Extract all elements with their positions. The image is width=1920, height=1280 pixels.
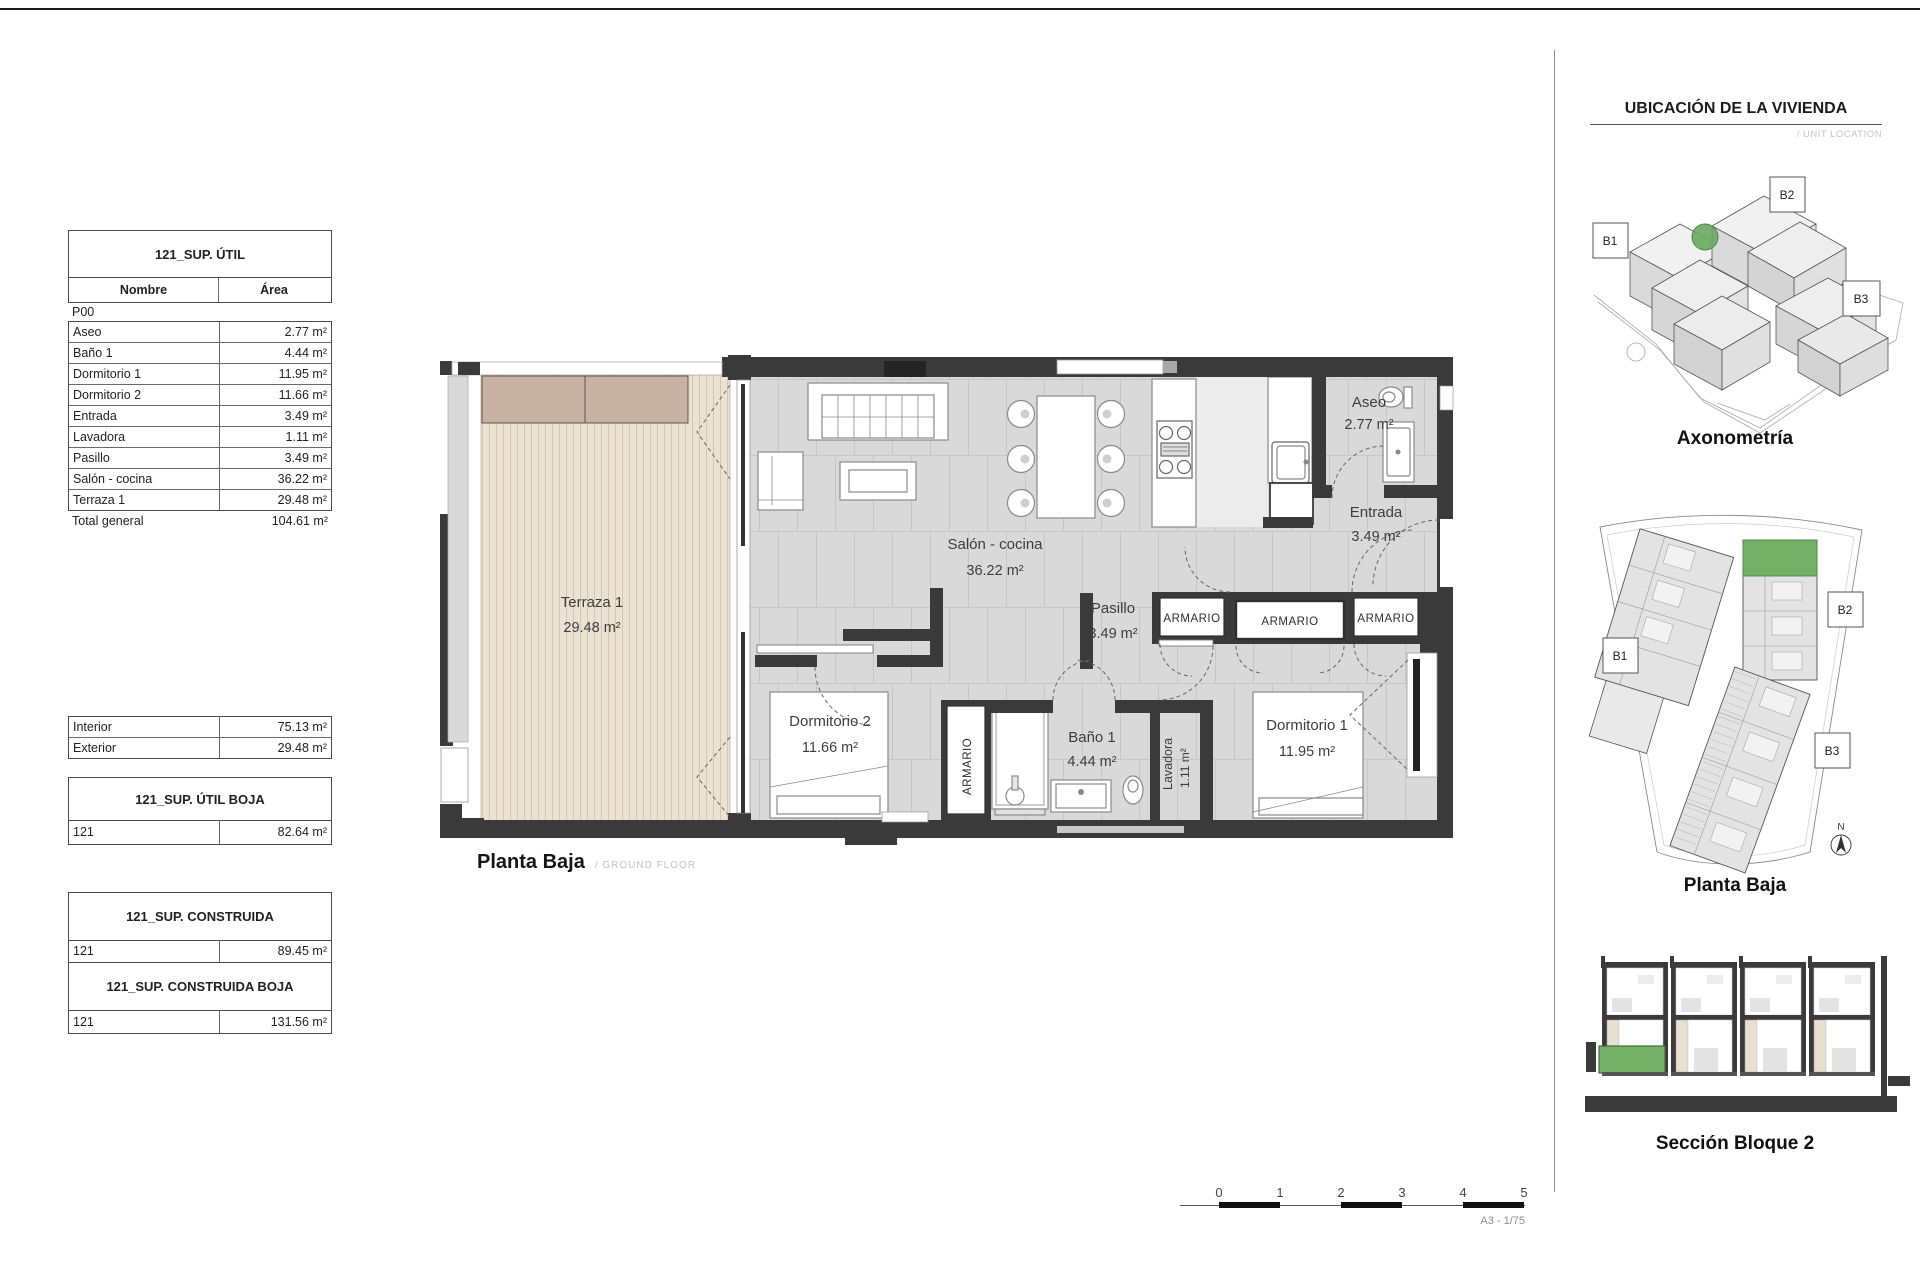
room-label-entrada: Entrada [1350, 504, 1403, 521]
row-name: Baño 1 [69, 343, 220, 363]
unit-highlight-section [1599, 1046, 1665, 1073]
scale-tick: 4 [1453, 1185, 1473, 1200]
table-row: Pasillo3.49 m² [69, 447, 331, 468]
room-label-bano: Baño 1 [1068, 729, 1116, 746]
sofa [808, 383, 948, 440]
table-title: 121_SUP. ÚTIL [68, 230, 332, 278]
table-title: 121_SUP. CONSTRUIDA [68, 892, 332, 941]
row-name: Entrada [69, 406, 220, 426]
section-caption: Sección Bloque 2 [1570, 1133, 1900, 1155]
section-diagram [1585, 950, 1915, 1130]
total-value: 104.61 m² [219, 511, 332, 531]
row-name: Dormitorio 1 [69, 364, 220, 384]
table-row: Entrada3.49 m² [69, 405, 331, 426]
kitchen-island [1152, 379, 1196, 527]
axon-caption: Axonometría [1570, 428, 1900, 450]
row-name: Exterior [69, 738, 220, 758]
scale-tick: 2 [1331, 1185, 1351, 1200]
north-arrow: N [1831, 822, 1851, 855]
sidebar-subtitle: / UNIT LOCATION [1590, 129, 1882, 140]
room-label-aseo: Aseo [1352, 394, 1386, 411]
scale-segment [1341, 1202, 1402, 1208]
row-name: Pasillo [69, 448, 220, 468]
table-util-boja: 121_SUP. ÚTIL BOJA 121 82.64 m² [68, 777, 332, 845]
room-area-lavadora: 1.11 m² [1178, 748, 1192, 788]
armchair [758, 452, 803, 510]
bano-toilet [1123, 776, 1143, 804]
bano-sink [1051, 780, 1111, 812]
shower [992, 707, 1048, 815]
plan-caption-title: Planta Baja [477, 851, 585, 873]
room-area-bano: 4.44 m² [1067, 754, 1116, 770]
total-label: Total general [68, 511, 219, 531]
closet-label: ARMARIO [1163, 613, 1220, 625]
section-modules [1599, 956, 1875, 1076]
room-label-pasillo: Pasillo [1091, 600, 1135, 617]
scale-bar: 0 1 2 3 4 5 A3 - 1/75 [1180, 1185, 1560, 1240]
table-row: Dormitorio 211.66 m² [69, 384, 331, 405]
group-label: P00 [68, 303, 221, 321]
row-name: Interior [69, 717, 220, 737]
sidebar-header: UBICACIÓN DE LA VIVIENDA / UNIT LOCATION [1590, 100, 1882, 140]
row-name: 121 [69, 941, 220, 962]
room-label-dormitorio1: Dormitorio 1 [1266, 717, 1348, 734]
scale-tick: 0 [1209, 1185, 1229, 1200]
window-bottom [882, 812, 928, 822]
scale-tick: 1 [1270, 1185, 1290, 1200]
ground-slab [1585, 1096, 1897, 1112]
room-area-pasillo: 3.49 m² [1088, 626, 1137, 642]
row-name: Dormitorio 2 [69, 385, 220, 405]
row-name: Lavadora [69, 427, 220, 447]
floor-plan: Terraza 1 29.48 m² Salón - cocina 36.22 … [440, 340, 1460, 860]
room-area-terraza: 29.48 m² [563, 620, 620, 636]
table-row: Terraza 129.48 m² [69, 489, 331, 510]
closet-label: ARMARIO [1261, 616, 1318, 628]
window-top [1057, 360, 1163, 374]
row-area: 4.44 m² [220, 343, 331, 363]
label-b3: B3 [1854, 292, 1869, 306]
room-area-dormitorio1: 11.95 m² [1279, 744, 1335, 760]
table-row: Baño 14.44 m² [69, 342, 331, 363]
sidebar-title: UBICACIÓN DE LA VIVIENDA [1590, 100, 1882, 125]
row-name: Terraza 1 [69, 490, 220, 510]
label-b1: B1 [1603, 234, 1618, 248]
panel-divider-line [1554, 50, 1555, 1192]
scale-segment [1463, 1202, 1524, 1208]
entry-door-opening [1440, 519, 1453, 587]
label-b2: B2 [1838, 603, 1853, 617]
plan-caption-sub: / GROUND FLOOR [595, 860, 696, 871]
north-label: N [1837, 822, 1844, 833]
row-area: 1.11 m² [220, 427, 331, 447]
table-construida: 121_SUP. CONSTRUIDA 121 89.45 m² 121_SUP… [68, 892, 332, 1034]
table-sup-util: 121_SUP. ÚTIL Nombre Área P00 Aseo2.77 m… [68, 230, 332, 531]
row-area: 89.45 m² [220, 941, 331, 962]
room-label-dormitorio2: Dormitorio 2 [789, 713, 871, 730]
column-header-area: Área [219, 278, 329, 302]
row-area: 75.13 m² [220, 717, 331, 737]
row-area: 82.64 m² [220, 821, 331, 844]
row-area: 29.48 m² [220, 738, 331, 758]
table-title: 121_SUP. CONSTRUIDA BOJA [68, 963, 332, 1011]
row-name: Aseo [69, 322, 220, 342]
room-area-entrada: 3.49 m² [1351, 529, 1400, 545]
table-body: Interior75.13 m² Exterior29.48 m² [68, 716, 332, 759]
row-area: 11.95 m² [220, 364, 331, 384]
row-area: 3.49 m² [220, 448, 331, 468]
room-area-dormitorio2: 11.66 m² [802, 740, 858, 756]
site-plan-diagram: B1 B2 B3 N [1585, 505, 1915, 875]
row-area: 36.22 m² [220, 469, 331, 489]
low-cabinet [757, 645, 873, 653]
shelf [1159, 640, 1213, 646]
table-row: Interior75.13 m² [69, 717, 331, 737]
table-row: Aseo2.77 m² [69, 322, 331, 342]
table-interior-exterior: Interior75.13 m² Exterior29.48 m² [68, 716, 332, 759]
plan-caption: Planta Baja/ GROUND FLOOR [477, 851, 696, 874]
row-area: 131.56 m² [220, 1011, 331, 1033]
section-end-wall [1881, 956, 1887, 1104]
site-b2-building [1743, 540, 1817, 680]
room-label-lavadora: Lavadora [1161, 738, 1175, 790]
label-b1: B1 [1613, 649, 1628, 663]
table-title: 121_SUP. ÚTIL BOJA [68, 777, 332, 821]
closet-label: ARMARIO [1357, 613, 1414, 625]
table-row: Salón - cocina36.22 m² [69, 468, 331, 489]
scale-tick: 3 [1392, 1185, 1412, 1200]
neighbor-terrace-strip [448, 376, 468, 742]
unit-highlight-axon [1692, 224, 1718, 250]
room-label-salon: Salón - cocina [947, 536, 1043, 553]
row-name: 121 [69, 1011, 220, 1033]
room-area-salon: 36.22 m² [966, 563, 1023, 579]
kitchen-floor [1196, 377, 1268, 527]
unit-highlight-site [1743, 540, 1817, 576]
row-area: 11.66 m² [220, 385, 331, 405]
table-body: Aseo2.77 m² Baño 14.44 m² Dormitorio 111… [68, 321, 332, 511]
column-header-nombre: Nombre [69, 278, 219, 302]
kitchen-counter [1268, 377, 1312, 483]
row-name: 121 [69, 821, 220, 844]
window-aseo [1440, 386, 1453, 410]
scale-segment [1219, 1202, 1280, 1208]
window-dormitorio1 [1407, 653, 1437, 777]
drawing-sheet: { "page": { "scale_ticks": ["0","1","2",… [0, 0, 1920, 1280]
room-area-aseo: 2.77 m² [1344, 417, 1393, 433]
closet-label-vertical: ARMARIO [962, 738, 974, 795]
row-name: Salón - cocina [69, 469, 220, 489]
room-label-terraza: Terraza 1 [561, 594, 624, 611]
coffee-table [840, 462, 916, 500]
site-caption: Planta Baja [1570, 875, 1900, 897]
window-sill-bottom [1057, 826, 1184, 833]
axonometry-diagram: B1 B2 B3 [1585, 150, 1915, 450]
table-row: Lavadora1.11 m² [69, 426, 331, 447]
table-row: Exterior29.48 m² [69, 737, 331, 758]
row-area: 29.48 m² [220, 490, 331, 510]
terrace-overhang-line [452, 362, 722, 375]
label-b2: B2 [1780, 188, 1795, 202]
dining-table [1037, 396, 1095, 518]
row-area: 2.77 m² [220, 322, 331, 342]
scale-tick: 5 [1514, 1185, 1534, 1200]
row-area: 3.49 m² [220, 406, 331, 426]
label-b3: B3 [1825, 744, 1840, 758]
table-row: Dormitorio 111.95 m² [69, 363, 331, 384]
scale-note: A3 - 1/75 [1420, 1215, 1525, 1227]
sheet-top-border [0, 8, 1920, 10]
